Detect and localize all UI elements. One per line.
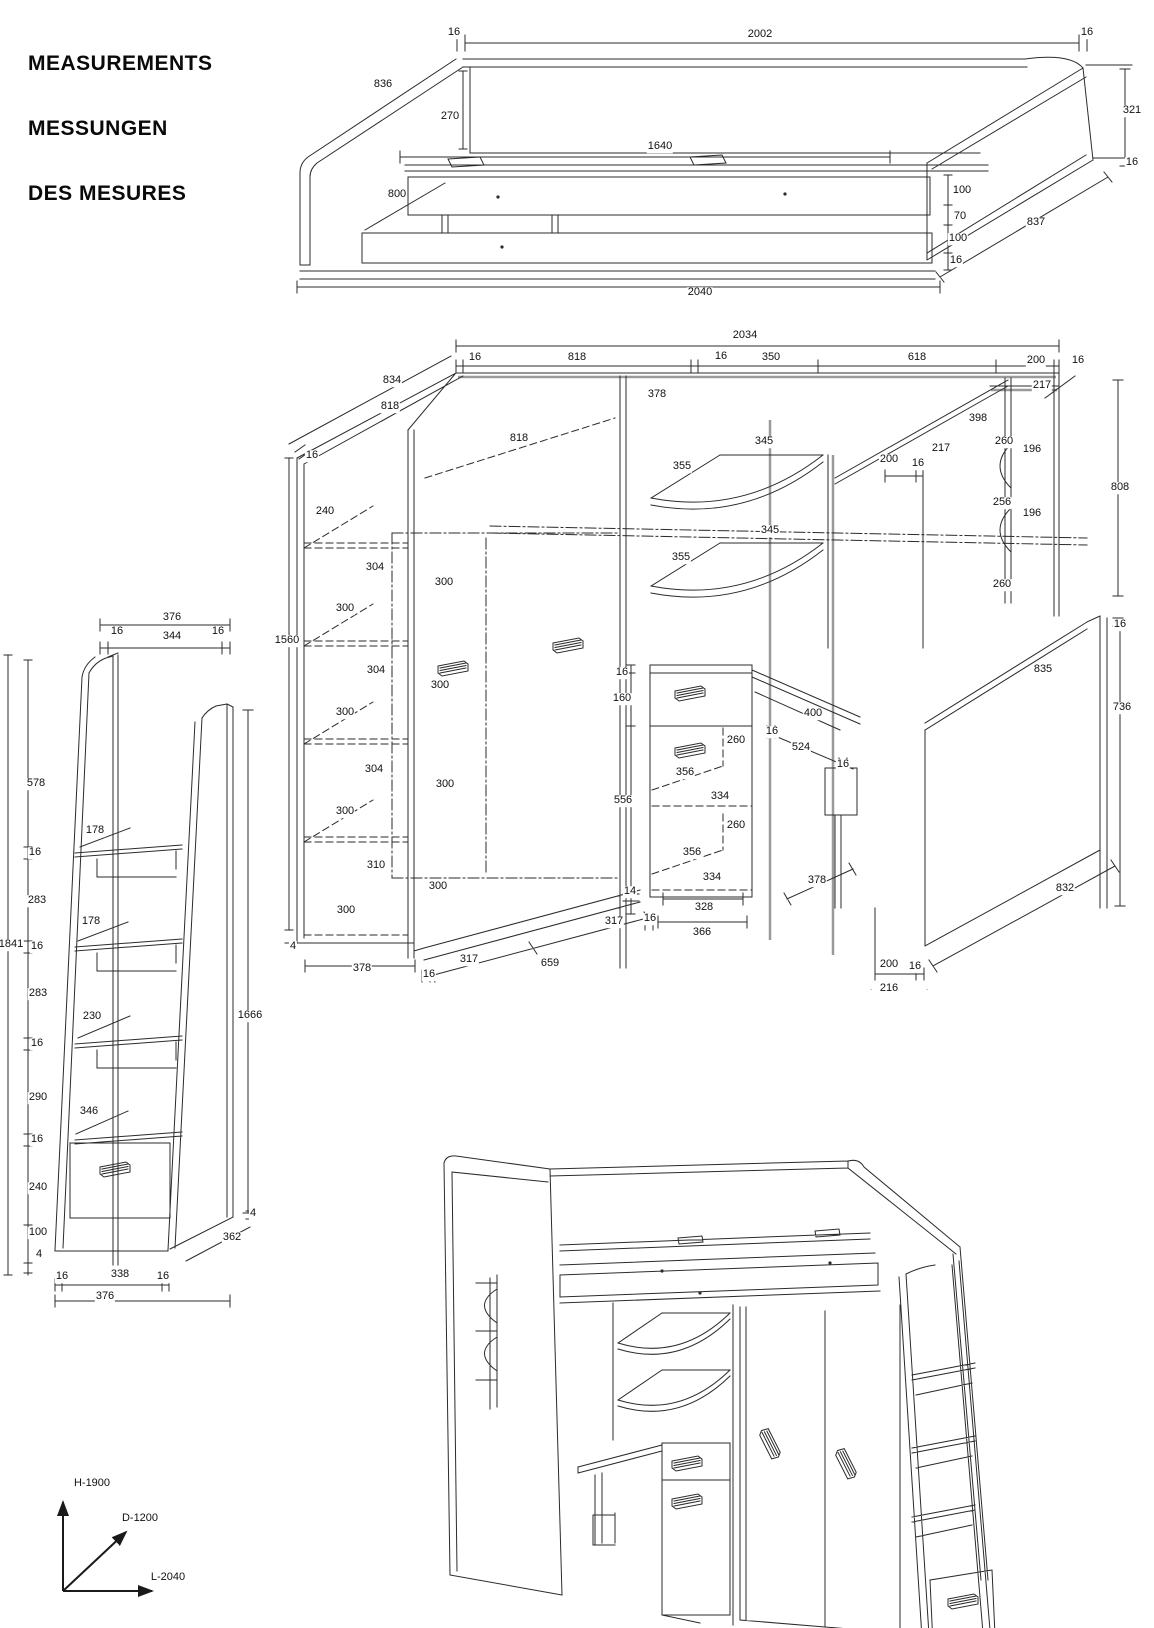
dimension-label: 355 bbox=[672, 461, 692, 473]
dimension-label: 16 bbox=[765, 726, 779, 738]
dimension-label: 334 bbox=[710, 791, 730, 803]
sheet-title: MEASUREMENTS MESSUNGEN DES MESURES bbox=[28, 52, 213, 247]
dimension-label: 260 bbox=[992, 579, 1012, 591]
dimension-label: 4 bbox=[35, 1249, 43, 1261]
dimension-label: 283 bbox=[27, 895, 47, 907]
dimension-label: 400 bbox=[803, 708, 823, 720]
dimension-label: 1640 bbox=[647, 141, 673, 153]
dimension-label: 200 bbox=[1026, 355, 1046, 367]
dimension-label: 16 bbox=[1071, 355, 1085, 367]
dimension-label: 2002 bbox=[747, 29, 773, 41]
dimension-label: 836 bbox=[373, 79, 393, 91]
dimension-label: 334 bbox=[702, 872, 722, 884]
dimension-label: 16 bbox=[908, 961, 922, 973]
dimension-label: 16 bbox=[836, 759, 850, 771]
dimension-label: 376 bbox=[95, 1291, 115, 1303]
dimension-label: 217 bbox=[1032, 380, 1052, 392]
dimension-label: 300 bbox=[434, 577, 454, 589]
dimension-label: 100 bbox=[948, 233, 968, 245]
dimension-label: 270 bbox=[440, 111, 460, 123]
loft-bed-perspective-drawing bbox=[400, 1075, 1030, 1628]
dimension-label: 16 bbox=[156, 1271, 170, 1283]
loft-bed-perspective-view bbox=[400, 1075, 1030, 1628]
dimension-label: 345 bbox=[754, 436, 774, 448]
dimension-label: 4 bbox=[249, 1208, 257, 1220]
dimension-label: 344 bbox=[162, 631, 182, 643]
dimension-label: 2040 bbox=[687, 287, 713, 299]
dimension-label: 1841 bbox=[0, 939, 24, 951]
dimension-label: 16 bbox=[714, 351, 728, 363]
dimension-label: 240 bbox=[315, 506, 335, 518]
dimension-label: 216 bbox=[879, 983, 899, 995]
dimension-label: 835 bbox=[1033, 664, 1053, 676]
dimension-label: 178 bbox=[81, 916, 101, 928]
title-de: MESSUNGEN bbox=[28, 117, 213, 141]
dimension-label: 304 bbox=[364, 764, 384, 776]
bed-frame-drawing bbox=[280, 25, 1154, 305]
title-en: MEASUREMENTS bbox=[28, 52, 213, 76]
dimension-label: 300 bbox=[335, 603, 355, 615]
dimension-label: 356 bbox=[675, 767, 695, 779]
dimension-label: 16 bbox=[949, 255, 963, 267]
dimension-label: 300 bbox=[335, 806, 355, 818]
dimension-label: 310 bbox=[366, 860, 386, 872]
dimension-label: 808 bbox=[1110, 482, 1130, 494]
dimension-label: 317 bbox=[604, 916, 624, 928]
dimension-label: 260 bbox=[726, 820, 746, 832]
dimension-label: 659 bbox=[540, 958, 560, 970]
dimension-label: 16 bbox=[1080, 27, 1094, 39]
dimension-label: 16 bbox=[468, 352, 482, 364]
dimension-label: 362 bbox=[222, 1232, 242, 1244]
dimension-label: 321 bbox=[1122, 105, 1142, 117]
dimension-label: 16 bbox=[1113, 619, 1127, 631]
dimension-label: H-1900 bbox=[73, 1478, 111, 1490]
dimension-label: 14 bbox=[623, 886, 637, 898]
dimension-label: 304 bbox=[366, 665, 386, 677]
dimension-label: 378 bbox=[807, 875, 827, 887]
dimension-label: 200 bbox=[879, 454, 899, 466]
dimension-label: 618 bbox=[907, 352, 927, 364]
dimension-label: 818 bbox=[380, 401, 400, 413]
dimension-label: 832 bbox=[1055, 883, 1075, 895]
dimension-label: 16 bbox=[30, 1038, 44, 1050]
axes-arrows-icon bbox=[40, 1468, 210, 1613]
dimension-label: 356 bbox=[682, 847, 702, 859]
dimension-label: 260 bbox=[726, 735, 746, 747]
dimension-label: 178 bbox=[85, 825, 105, 837]
dimension-label: 16 bbox=[911, 458, 925, 470]
dimension-label: 217 bbox=[931, 443, 951, 455]
dimension-label: 16 bbox=[422, 969, 436, 981]
dimension-label: 196 bbox=[1022, 444, 1042, 456]
dimension-label: 736 bbox=[1112, 702, 1132, 714]
dimension-label: 556 bbox=[613, 795, 633, 807]
dimension-label: 196 bbox=[1022, 508, 1042, 520]
dimension-label: 524 bbox=[791, 742, 811, 754]
dimension-label: 818 bbox=[567, 352, 587, 364]
dimension-label: 16 bbox=[28, 847, 42, 859]
dimension-label: 837 bbox=[1026, 217, 1046, 229]
dimension-label: 304 bbox=[365, 562, 385, 574]
title-fr: DES MESURES bbox=[28, 182, 213, 206]
dimension-label: 300 bbox=[430, 680, 450, 692]
dimension-label: 350 bbox=[761, 352, 781, 364]
dimension-label: 290 bbox=[28, 1092, 48, 1104]
dimension-label: 100 bbox=[28, 1227, 48, 1239]
dimension-label: 345 bbox=[760, 525, 780, 537]
dimension-label: 16 bbox=[110, 626, 124, 638]
ladder-side-view: 3761634416578178162831781841162832301629… bbox=[0, 585, 270, 1315]
dimension-label: 346 bbox=[79, 1106, 99, 1118]
dimension-label: 16 bbox=[55, 1271, 69, 1283]
dimension-label: 260 bbox=[994, 436, 1014, 448]
dimension-label: 328 bbox=[694, 902, 714, 914]
dimension-label: 200 bbox=[879, 959, 899, 971]
dimension-label: 240 bbox=[28, 1182, 48, 1194]
dimension-label: 376 bbox=[162, 612, 182, 624]
dimension-label: 1666 bbox=[237, 1010, 263, 1022]
dimension-label: 300 bbox=[335, 707, 355, 719]
dimension-label: 16 bbox=[615, 667, 629, 679]
dimension-label: 317 bbox=[459, 954, 479, 966]
dimension-label: 16 bbox=[447, 27, 461, 39]
dimension-label: 16 bbox=[30, 1134, 44, 1146]
dimension-label: 355 bbox=[671, 552, 691, 564]
dimension-label: 300 bbox=[435, 779, 455, 791]
dimension-label: 256 bbox=[992, 497, 1012, 509]
dimension-label: 378 bbox=[352, 963, 372, 975]
dimension-label: 300 bbox=[336, 905, 356, 917]
dimension-label: 578 bbox=[26, 778, 46, 790]
dimension-label: 100 bbox=[952, 185, 972, 197]
dimension-label: 800 bbox=[387, 189, 407, 201]
bed-frame-view: 1620021683627016408001007010016837321162… bbox=[280, 25, 1154, 305]
dimension-label: 834 bbox=[382, 375, 402, 387]
dimension-label: 378 bbox=[647, 389, 667, 401]
dimension-label: 70 bbox=[953, 211, 967, 223]
dimension-label: 16 bbox=[305, 450, 319, 462]
measurement-sheet: MEASUREMENTS MESSUNGEN DES MESURES 16200… bbox=[0, 0, 1154, 1628]
wardrobe-interior-view: 2034168181635061820016834818378217398260… bbox=[275, 318, 1141, 990]
dimension-label: 1560 bbox=[274, 635, 300, 647]
dimension-label: 160 bbox=[612, 693, 632, 705]
dimension-label: 4 bbox=[289, 941, 297, 953]
dimension-label: 2034 bbox=[732, 330, 758, 342]
dimension-label: 366 bbox=[692, 927, 712, 939]
wardrobe-interior-drawing bbox=[275, 318, 1141, 990]
dimension-label: 16 bbox=[30, 941, 44, 953]
dimension-label: 283 bbox=[28, 988, 48, 1000]
dimension-label: 338 bbox=[110, 1269, 130, 1281]
dimension-label: L-2040 bbox=[150, 1572, 186, 1584]
dimension-label: 398 bbox=[968, 413, 988, 425]
dimension-label: D-1200 bbox=[121, 1513, 159, 1525]
dimension-label: 818 bbox=[509, 433, 529, 445]
dimension-label: 300 bbox=[428, 881, 448, 893]
dimension-axes-legend: H-1900D-1200L-2040 bbox=[40, 1468, 210, 1613]
dimension-label: 16 bbox=[643, 913, 657, 925]
dimension-label: 16 bbox=[211, 626, 225, 638]
dimension-label: 16 bbox=[1125, 157, 1139, 169]
dimension-label: 230 bbox=[82, 1011, 102, 1023]
